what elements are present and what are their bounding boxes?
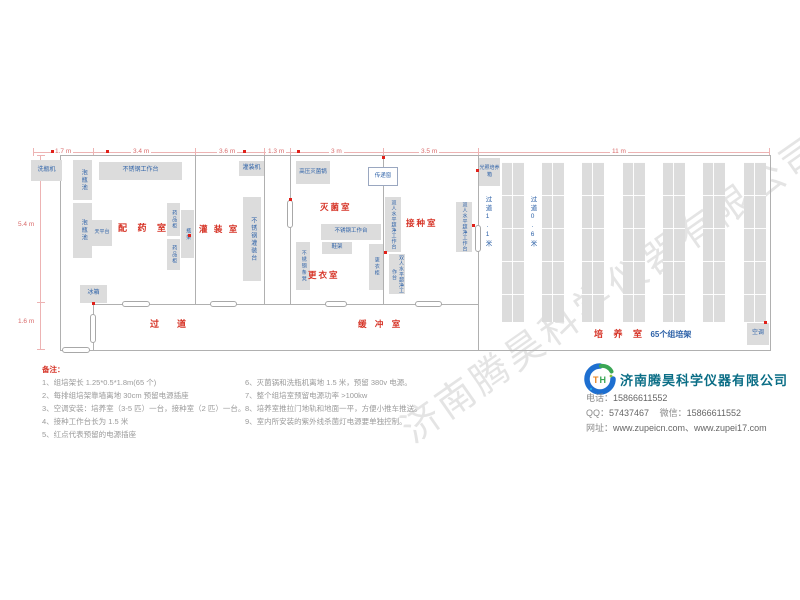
socket-dot (382, 156, 385, 159)
dim-line-left (40, 155, 41, 350)
floorplan-drawing: 济南腾昊科学仪器有限公司 1.7 m 3.4 m 3.6 m 1.3 m 3 m… (0, 0, 800, 600)
qq-value: 57437467 (609, 408, 649, 418)
aisle-label: 过道1.1米 (482, 196, 492, 256)
equip-steel-bench: 不锈钢条凳 (296, 242, 310, 290)
equip-clean-bench: 双人水平超净工作台 (385, 197, 401, 252)
notes-title: 备注： (42, 364, 65, 375)
dim-tick (37, 349, 45, 350)
socket-dot (297, 150, 300, 153)
socket-dot (51, 150, 54, 153)
socket-dot (92, 302, 95, 305)
equip-autoclave: 高压灭菌锅 (296, 161, 330, 184)
culture-rack (663, 162, 685, 322)
equip-clean-bench: 双人水平超净工作台 (389, 254, 405, 294)
equip-refrigerator: 冰箱 (80, 285, 107, 303)
door (415, 301, 442, 307)
wall-divider (195, 155, 196, 304)
note-item: 9、室内所安装的紫外线杀菌灯电源要单独控制。 (245, 416, 407, 427)
note-item: 6、灭菌锅和洗瓶机离地 1.5 米，预留 380v 电源。 (245, 377, 412, 388)
room-label-culture: 培 养 室 65个组培架 (594, 324, 691, 342)
socket-dot (472, 224, 475, 227)
door (475, 225, 481, 252)
door (287, 200, 293, 228)
note-item: 1、组培架长 1.25*0.5*1.8m(65 个) (42, 377, 156, 388)
note-item: 8、培养室推拉门地轨和地面一平，方便小推车推送。 (245, 403, 422, 414)
equip-light-incubator: 光照培养箱 (479, 158, 500, 186)
wall-left (60, 155, 61, 350)
culture-rack (502, 162, 524, 322)
svg-text:H: H (600, 375, 607, 385)
equip-air-conditioner: 空调 (747, 323, 769, 345)
room-label-preparation: 配 药 室 (118, 221, 170, 234)
equip-steel-worktable: 不锈钢工作台 (99, 162, 182, 180)
door (325, 301, 347, 307)
equip-soaking-pool: 泡瓶池 (73, 203, 92, 258)
door (62, 347, 90, 353)
equip-balance-table: 天平台 (92, 220, 112, 246)
company-qq-line: QQ：57437467 微信：15866611552 (586, 406, 741, 419)
equip-transfer-window: 传递窗 (368, 167, 398, 186)
dim-tick (37, 155, 45, 156)
company-phone-line: 电话：15866611552 (586, 391, 667, 404)
room-label-culture-text: 培 养 室 (594, 329, 646, 339)
culture-rack (703, 162, 725, 322)
equip-medicine-cabinet: 药品柜 (167, 239, 180, 270)
socket-dot (384, 251, 387, 254)
wall-divider (264, 155, 265, 304)
qq-label: QQ： (586, 408, 609, 418)
web-label: 网址： (586, 423, 613, 433)
dim-tick (37, 302, 45, 303)
wall-top (60, 155, 770, 156)
socket-dot (106, 150, 109, 153)
socket-dot (764, 321, 767, 324)
equip-clean-bench: 双人水平超净工作台 (456, 202, 472, 252)
dim-label: 5.4 m (16, 221, 36, 228)
room-label-buffer: 缓 冲 室 (358, 318, 403, 330)
culture-rack (744, 162, 766, 322)
culture-rack (542, 162, 564, 322)
dim-label: 1.3 m (266, 148, 286, 155)
socket-dot (289, 198, 292, 201)
note-item: 3、空调安装：培养室（3-5 匹）一台，接种室（2 匹）一台。 (42, 403, 245, 414)
door (210, 301, 237, 307)
dim-label: 1.7 m (53, 148, 73, 155)
equip-shoe-rack: 鞋架 (322, 242, 352, 254)
socket-dot (243, 150, 246, 153)
door (90, 314, 96, 343)
dim-label: 3.6 m (217, 148, 237, 155)
room-label-changing: 更衣室 (308, 269, 340, 281)
dim-label: 3.4 m (131, 148, 151, 155)
dim-tick (33, 148, 34, 156)
equip-steel-filling-table: 不锈钢灌装台 (243, 197, 261, 281)
room-label-filling: 灌 装 室 (199, 223, 239, 235)
culture-rack (623, 162, 645, 322)
socket-dot (188, 234, 191, 237)
equip-steel-worktable: 不锈钢工作台 (321, 224, 381, 240)
room-label-sterilization: 灭菌室 (320, 201, 352, 213)
aisle-label: 过道0.6米 (527, 196, 537, 256)
wall-bottom (60, 350, 771, 351)
note-item: 7、整个组培室预留电源功率 >100kw (245, 390, 367, 401)
equip-locker: 更衣柜 (369, 244, 383, 290)
room-label-inoculation: 接种室 (406, 217, 438, 229)
equip-soaking-pool: 泡瓶池 (73, 160, 92, 200)
note-item: 4、接种工作台长为 1.5 米 (42, 416, 128, 427)
wall-divider (290, 155, 291, 304)
dim-label: 3.5 m (419, 148, 439, 155)
svg-text:T: T (593, 375, 599, 385)
door (122, 301, 150, 307)
wechat-value: 15866611552 (687, 408, 741, 418)
socket-dot (476, 169, 479, 172)
equip-filling-machine: 灌装机 (239, 161, 264, 176)
company-name: 济南腾昊科学仪器有限公司 (620, 370, 788, 389)
dim-label: 11 m (610, 148, 628, 155)
dim-label: 3 m (329, 148, 344, 155)
equip-bottle-washer: 洗瓶机 (31, 160, 62, 181)
dim-label: 1.6 m (16, 318, 36, 325)
web-value: www.zupeicn.com、www.zupei17.com (613, 423, 767, 433)
note-item: 2、每排组培架靠墙离地 30cm 预留电源插座 (42, 390, 189, 401)
wall-right (770, 155, 771, 351)
phone-label: 电话： (586, 393, 613, 403)
company-web-line: 网址：www.zupeicn.com、www.zupei17.com (586, 421, 767, 434)
wechat-label: 微信： (660, 408, 687, 418)
room-label-corridor: 过 道 (150, 317, 186, 330)
culture-rack (582, 162, 604, 322)
note-item: 5、红点代表预留的电源插座 (42, 429, 136, 440)
room-label-culture-sub: 65个组培架 (650, 330, 691, 339)
phone-value: 15866611552 (613, 393, 667, 403)
